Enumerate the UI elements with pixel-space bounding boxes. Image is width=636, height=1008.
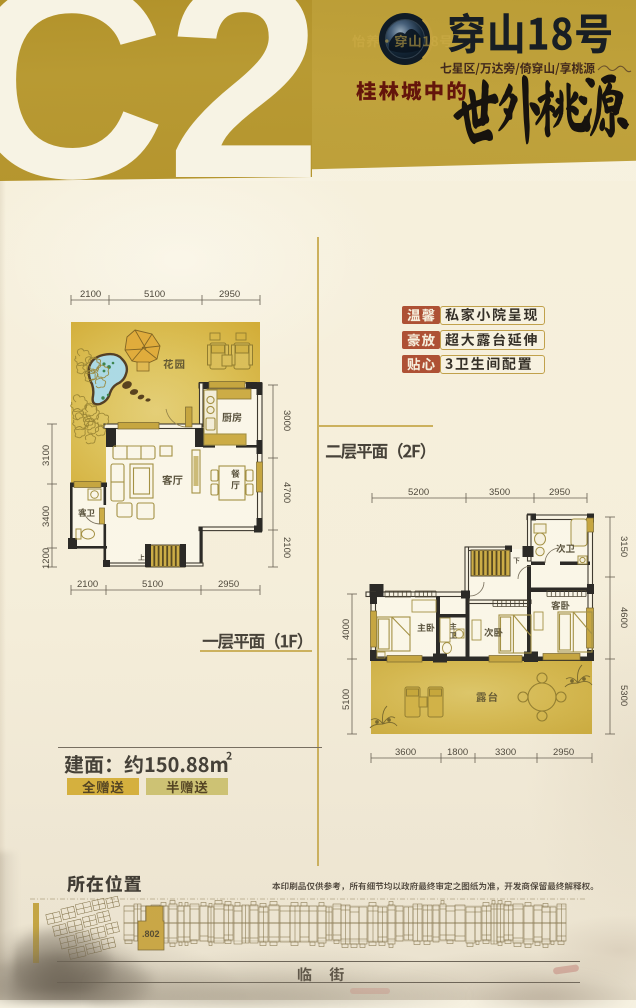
svg-text:3000: 3000 [281,410,292,431]
svg-text:2100: 2100 [281,537,292,558]
svg-text:5300: 5300 [618,685,629,706]
svg-text:3100: 3100 [41,445,52,466]
svg-text:2950: 2950 [219,289,240,300]
svg-text:5100: 5100 [142,579,163,590]
svg-text:1200: 1200 [41,548,52,569]
svg-text:3500: 3500 [489,487,510,498]
svg-text:5200: 5200 [408,487,429,498]
svg-text:3400: 3400 [41,506,52,527]
svg-text:2100: 2100 [80,289,101,300]
svg-text:5100: 5100 [341,689,352,710]
svg-text:3600: 3600 [395,747,416,758]
svg-text:2100: 2100 [77,579,98,590]
svg-text:4700: 4700 [281,482,292,503]
svg-text:2950: 2950 [549,487,570,498]
svg-text:3300: 3300 [495,747,516,758]
svg-text:3150: 3150 [618,536,629,557]
svg-text:5100: 5100 [144,289,165,300]
svg-text:2950: 2950 [218,579,239,590]
svg-text:1800: 1800 [447,747,468,758]
svg-text:4600: 4600 [618,607,629,628]
svg-text:2950: 2950 [553,747,574,758]
svg-text:4000: 4000 [341,619,352,640]
